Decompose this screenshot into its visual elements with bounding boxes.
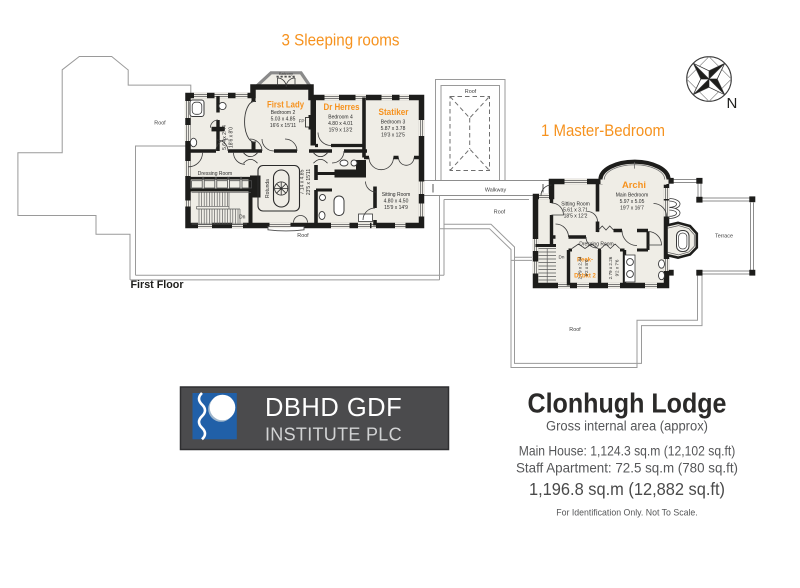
svg-text:18'6 x 8'0: 18'6 x 8'0 <box>229 127 235 148</box>
svg-text:Dn: Dn <box>559 255 565 260</box>
svg-text:Terrace: Terrace <box>715 234 733 240</box>
svg-text:Bedroom 3: Bedroom 3 <box>381 120 406 126</box>
svg-text:DBHD GDF: DBHD GDF <box>265 394 402 422</box>
svg-text:First Floor: First Floor <box>131 279 185 291</box>
svg-text:Gross internal area (approx): Gross internal area (approx) <box>546 419 708 434</box>
svg-text:Bedroom 4: Bedroom 4 <box>328 115 353 121</box>
svg-text:15'9 x 14'9: 15'9 x 14'9 <box>384 205 408 211</box>
svg-text:Dressing Room: Dressing Room <box>579 242 613 248</box>
svg-text:1,196.8 sq.m (12,882 sq.ft): 1,196.8 sq.m (12,882 sq.ft) <box>529 479 725 499</box>
svg-text:3 Sleeping rooms: 3 Sleeping rooms <box>282 31 400 50</box>
svg-text:Clonhugh Lodge: Clonhugh Lodge <box>528 388 727 419</box>
svg-text:Dressing Room: Dressing Room <box>198 171 232 177</box>
svg-text:5.97 x 5.05: 5.97 x 5.05 <box>620 199 645 205</box>
svg-text:Balcony: Balcony <box>279 71 293 76</box>
svg-text:16'6 x 15'11: 16'6 x 15'11 <box>270 123 297 129</box>
svg-text:Roof: Roof <box>154 121 166 127</box>
svg-text:Bedroom 2: Bedroom 2 <box>271 110 296 116</box>
svg-text:N: N <box>727 95 738 112</box>
svg-text:Main House: 1,124.3 sq.m (12,1: Main House: 1,124.3 sq.m (12,102 sq.ft) <box>519 444 736 459</box>
svg-text:Sitting Room: Sitting Room <box>382 192 411 198</box>
svg-text:4.80 x 4.50: 4.80 x 4.50 <box>384 199 409 205</box>
svg-text:INSTITUTE PLC: INSTITUTE PLC <box>265 425 402 445</box>
svg-text:For Identification Only. Not T: For Identification Only. Not To Scale. <box>556 508 698 518</box>
svg-text:23'5 x 15'11: 23'5 x 15'11 <box>306 169 312 196</box>
svg-text:Staff Apartment: 72.5 sq.m (78: Staff Apartment: 72.5 sq.m (780 sq.ft) <box>516 461 738 476</box>
svg-text:2.79 x 2.44: 2.79 x 2.44 <box>578 256 583 279</box>
svg-text:4.80 x 4.01: 4.80 x 4.01 <box>328 121 353 127</box>
svg-text:Main Bedroom: Main Bedroom <box>616 193 649 199</box>
svg-text:Roof: Roof <box>494 210 506 216</box>
svg-text:First Lady: First Lady <box>267 100 305 110</box>
svg-text:Dn: Dn <box>239 215 246 221</box>
svg-text:1 Master-Bedroom: 1 Master-Bedroom <box>541 122 665 140</box>
svg-text:Dr Herres: Dr Herres <box>324 102 360 112</box>
svg-text:Roof: Roof <box>569 327 581 333</box>
svg-text:Archi: Archi <box>622 180 646 190</box>
svg-text:Statiker: Statiker <box>379 107 409 117</box>
svg-text:Roof: Roof <box>297 233 309 239</box>
svg-text:19'3 x 12'5: 19'3 x 12'5 <box>381 133 405 139</box>
svg-text:5.87 x 3.78: 5.87 x 3.78 <box>381 126 406 132</box>
svg-text:9'2 x 8'0: 9'2 x 8'0 <box>584 259 589 276</box>
svg-text:18'5 x 12'2: 18'5 x 12'2 <box>564 214 588 220</box>
svg-text:Rotunda: Rotunda <box>265 179 271 198</box>
svg-text:9'2 x 7'6: 9'2 x 7'6 <box>615 259 620 276</box>
svg-text:7.14 x 4.85: 7.14 x 4.85 <box>300 169 306 194</box>
svg-text:Roof: Roof <box>465 89 477 95</box>
svg-text:5.03 x 4.85: 5.03 x 4.85 <box>271 117 296 123</box>
svg-text:19'7 x 16'7: 19'7 x 16'7 <box>620 206 644 212</box>
svg-text:FP: FP <box>299 119 305 124</box>
svg-text:Walkway: Walkway <box>485 188 507 194</box>
svg-text:15'9 x 13'2: 15'9 x 13'2 <box>329 128 353 134</box>
svg-text:2.79 x 2.26: 2.79 x 2.26 <box>608 256 613 279</box>
